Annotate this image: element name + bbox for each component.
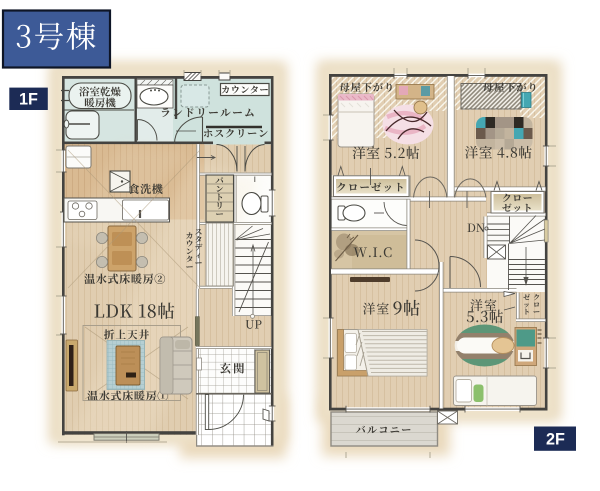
svg-text:1F: 1F [19, 90, 38, 108]
svg-text:2F: 2F [546, 431, 565, 449]
